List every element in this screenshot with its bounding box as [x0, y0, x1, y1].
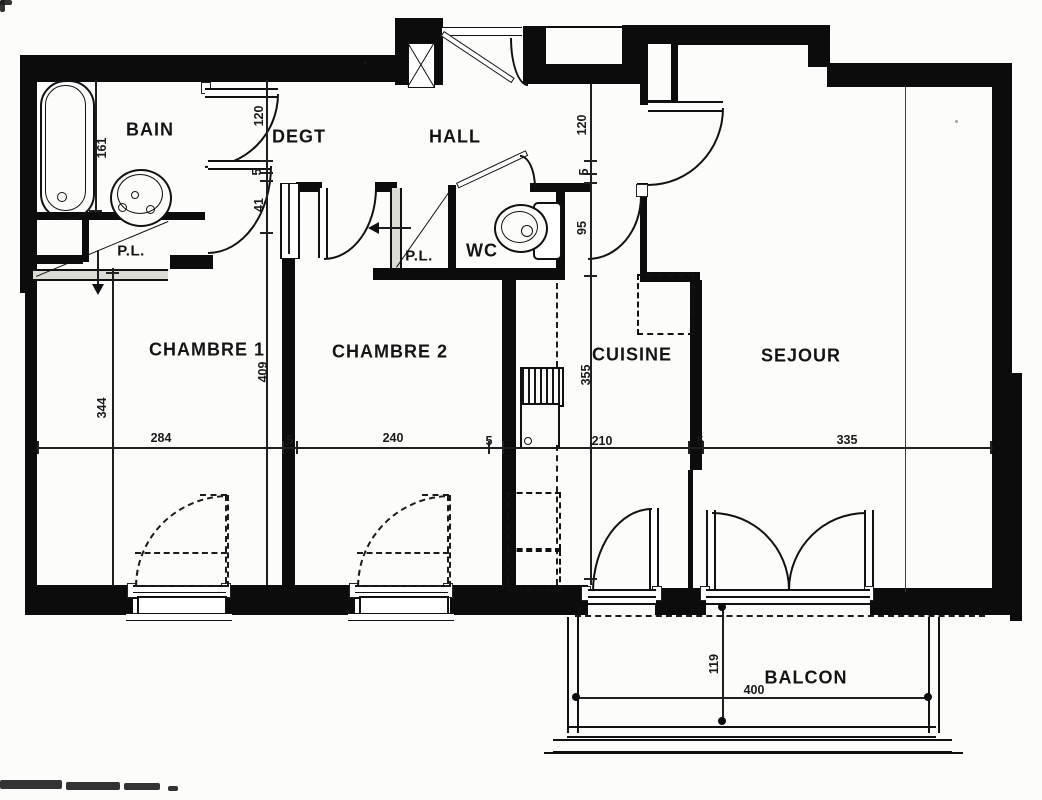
dim-dot — [718, 603, 726, 611]
washbasin-tap — [146, 205, 155, 214]
dim-tick — [89, 210, 102, 212]
dim-tick — [502, 441, 504, 454]
kitchen-drainer — [520, 403, 560, 449]
wall-bottom-seg — [870, 588, 1012, 615]
closet-arrow-line — [379, 227, 411, 229]
dim-dot — [924, 693, 932, 701]
bathtub-drain — [57, 192, 67, 202]
door-arc-french-left — [712, 512, 790, 590]
dim-tick — [584, 275, 597, 277]
dim-label-355: 355 — [579, 365, 593, 386]
dim-label-409: 409 — [256, 362, 270, 383]
door-arc-cuisine-balcony — [592, 508, 652, 592]
door-leaf-entry — [441, 31, 515, 83]
room-label-placard-hall: P.L. — [405, 248, 433, 265]
balcony-slab — [553, 739, 952, 753]
washbasin-drain — [131, 191, 139, 199]
wall-right — [992, 63, 1012, 603]
toilet-bowl — [494, 204, 548, 253]
closet-arrow-line — [97, 250, 99, 284]
sliding-door-track — [288, 184, 290, 254]
window-sill-line — [348, 613, 454, 621]
wall-sejour-west — [640, 43, 648, 105]
balcony-rail-right — [928, 617, 940, 733]
appliance-space — [507, 492, 561, 550]
wall-chambre1-top — [170, 255, 213, 269]
dim-label-161: 161 — [95, 138, 109, 159]
sliding-door-panel — [280, 183, 300, 259]
dim-label-120-left: 120 — [252, 106, 266, 127]
wall-hall-passage — [563, 183, 591, 192]
window-swing-line — [225, 495, 227, 583]
window-swing-chambre1 — [135, 495, 229, 587]
room-label-sejour: SEJOUR — [761, 346, 841, 367]
dim-tick — [260, 160, 273, 162]
dim-label-5-c: 5 — [697, 434, 704, 448]
dim-dot — [718, 717, 726, 725]
door-arc-bain — [205, 94, 279, 168]
vent-shaft-cross-icon — [408, 44, 435, 87]
wall-wc-left — [448, 185, 456, 268]
dim-line — [266, 80, 268, 585]
door-arc-chambre2 — [324, 188, 377, 260]
wall-bottom-seg — [655, 588, 706, 615]
dim-line — [112, 268, 114, 585]
balcony-slab-edge — [544, 752, 963, 758]
room-label-placard-bain: P.L. — [117, 243, 145, 260]
dim-tick — [37, 441, 39, 454]
kitchen-drain-hole — [524, 437, 532, 445]
dim-dot — [572, 693, 580, 701]
dim-tick — [584, 182, 597, 184]
wall-top-left — [20, 55, 400, 82]
duct-opening — [648, 44, 671, 100]
floor-plan: BAIN DEGT HALL P.L. P.L. WC CHAMBRE 1 CH… — [0, 0, 1042, 800]
wall-wc-bottom — [373, 268, 565, 280]
window-swing-line — [422, 494, 449, 496]
dim-label-41: 41 — [252, 198, 266, 212]
bathtub-inner — [45, 85, 86, 211]
window-swing-line — [447, 495, 449, 583]
dim-label-5-left: 5 — [250, 169, 264, 176]
balcony-rail-left — [567, 617, 579, 733]
door-arc-sejour — [648, 108, 724, 186]
wall-bottom-seg — [25, 585, 133, 615]
door-arc-french-right — [788, 512, 866, 590]
dim-line — [576, 697, 928, 699]
vent-shaft — [408, 43, 435, 88]
window-swing-line — [200, 494, 227, 496]
dim-label-400: 400 — [744, 683, 765, 697]
door-arc-cuisine — [588, 196, 642, 260]
toilet-flush — [521, 225, 533, 237]
wall-right-bump — [1010, 373, 1022, 621]
dim-label-120-right: 120 — [575, 115, 589, 136]
scan-artifact — [0, 0, 5, 12]
entry-landing — [442, 27, 522, 36]
dim-tick — [260, 180, 273, 182]
balcony-door-sill-cuisine — [588, 589, 656, 605]
balcony-facade-line — [575, 615, 985, 617]
wall-cuisine-sejour-thin — [688, 470, 693, 592]
appliance-space-fridge — [637, 274, 694, 335]
window-swing-line — [357, 552, 449, 554]
wall-left-lower — [25, 293, 37, 615]
wall-central — [282, 257, 295, 585]
dim-line — [722, 607, 724, 721]
appliance-space — [507, 550, 561, 591]
dim-label-335: 335 — [837, 433, 858, 447]
kitchen-sink — [520, 367, 564, 407]
dim-label-240: 240 — [383, 431, 404, 445]
window-swing-line — [135, 552, 227, 554]
wall-top-step — [808, 43, 830, 67]
dim-tick — [282, 441, 284, 454]
room-label-wc: WC — [466, 241, 498, 262]
dim-tick — [260, 232, 273, 234]
dim-line-main — [36, 447, 993, 449]
dim-label-344: 344 — [95, 398, 109, 419]
room-label-balcon: BALCON — [765, 668, 848, 689]
balcony-rail-bottom — [567, 726, 936, 738]
wall-top-right — [827, 63, 1012, 87]
room-label-degt: DEGT — [272, 127, 326, 148]
balcony-door-sill-sejour — [706, 589, 870, 605]
arrow-down-icon — [92, 284, 104, 295]
dim-label-5-a: 5 — [287, 433, 294, 447]
dim-label-210: 210 — [592, 434, 613, 448]
scan-artifact — [124, 783, 160, 790]
room-label-chambre1: CHAMBRE 1 — [149, 340, 265, 361]
dim-tick — [296, 441, 298, 454]
washbasin-tap — [118, 203, 127, 212]
counter-edge-line — [556, 283, 558, 367]
dim-tick — [584, 160, 597, 162]
scan-artifact — [955, 120, 958, 123]
scan-artifact — [66, 782, 120, 790]
toilet-bowl-inner — [501, 211, 538, 243]
closet-front-pl1 — [33, 269, 168, 281]
dim-tick — [106, 272, 119, 274]
window-sill-line — [126, 613, 232, 621]
door-leaf-wc — [456, 150, 528, 188]
sejour-zone-line — [905, 87, 906, 592]
scan-artifact — [0, 780, 62, 789]
scan-artifact — [168, 786, 178, 791]
scan-artifact — [363, 61, 367, 64]
room-label-chambre2: CHAMBRE 2 — [332, 342, 448, 363]
bathtub — [40, 80, 95, 220]
dim-label-284: 284 — [151, 431, 172, 445]
washbasin — [110, 169, 172, 227]
door-arc-wc — [520, 155, 536, 188]
wall-shaft-opening — [546, 28, 622, 64]
dim-label-5-right: 5 — [577, 169, 591, 176]
dim-label-5-b: 5 — [486, 434, 493, 448]
dim-label-119: 119 — [707, 654, 721, 674]
wall-bottom-seg — [226, 585, 355, 615]
dim-label-95: 95 — [575, 221, 589, 235]
dim-tick — [584, 578, 597, 580]
dim-tick — [688, 441, 690, 454]
window-swing-chambre2 — [357, 495, 451, 587]
room-label-hall: HALL — [429, 127, 481, 148]
dim-tick — [990, 441, 992, 454]
room-label-cuisine: CUISINE — [592, 345, 672, 366]
room-label-bain: BAIN — [126, 120, 174, 141]
